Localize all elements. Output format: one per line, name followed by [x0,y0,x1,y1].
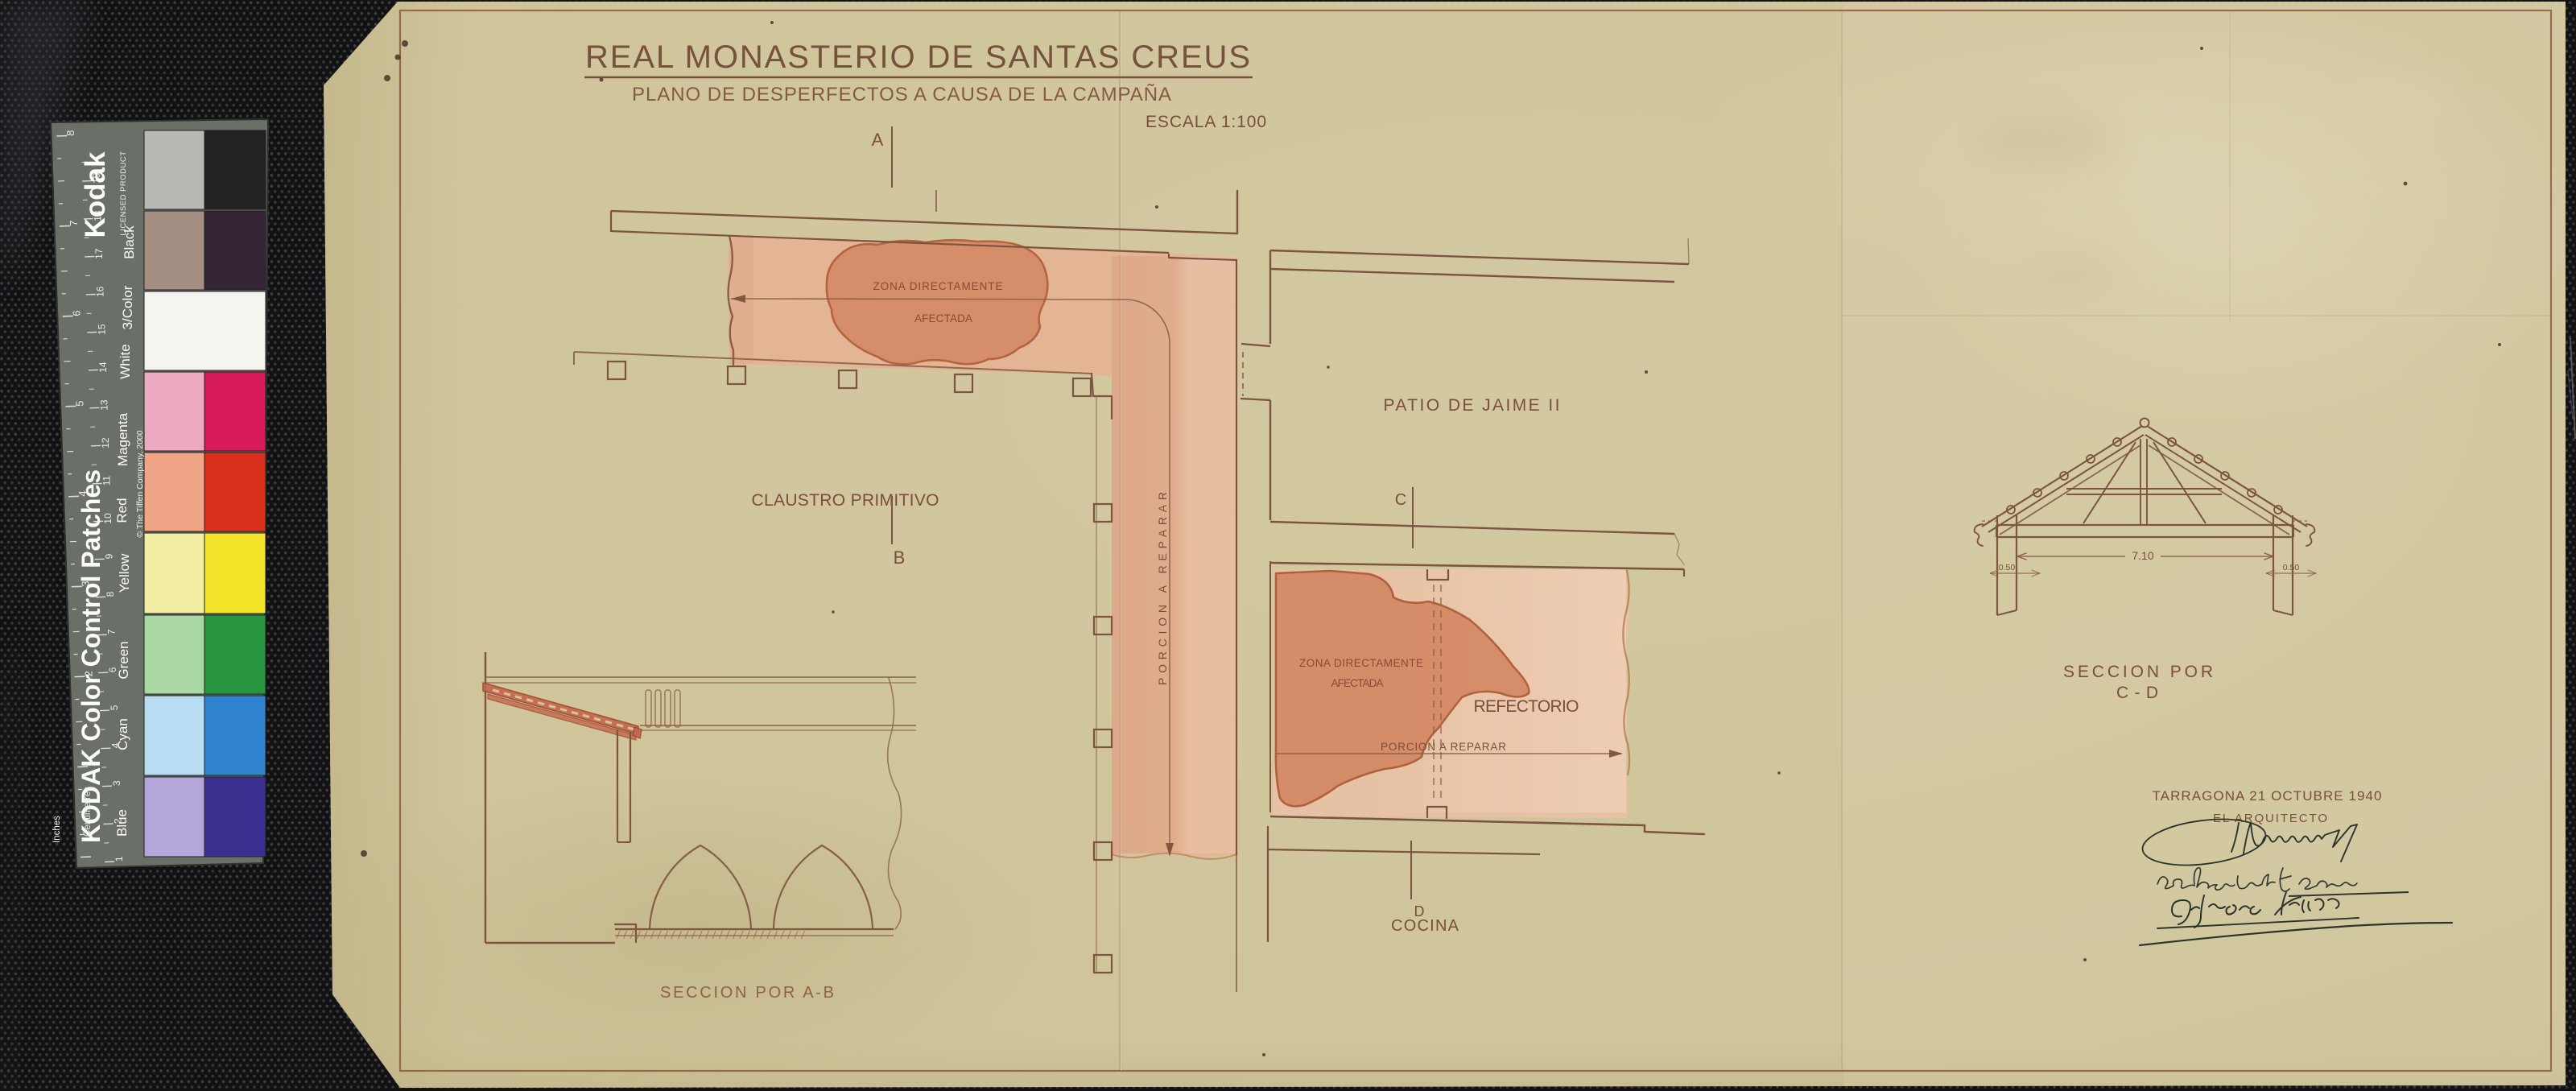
svg-text:C: C [1395,491,1406,509]
svg-text:14: 14 [97,362,109,373]
svg-text:5: 5 [109,705,120,710]
svg-text:5: 5 [73,400,85,406]
svg-text:3: 3 [111,780,122,786]
svg-text:ZONA DIRECTAMENTE: ZONA DIRECTAMENTE [873,280,1003,292]
svg-text:C - D: C - D [2116,684,2158,702]
svg-text:6: 6 [71,310,83,316]
svg-text:White: White [118,344,133,378]
svg-text:B: B [894,548,906,568]
svg-text:REAL MONASTERIO DE SANTAS CREU: REAL MONASTERIO DE SANTAS CREUS [585,39,1250,75]
svg-text:TARRAGONA 21 OCTUBRE 1940: TARRAGONA 21 OCTUBRE 1940 [2153,788,2382,804]
svg-text:8: 8 [64,130,76,136]
svg-text:7.10: 7.10 [2132,549,2153,562]
svg-text:CLAUSTRO PRIMITIVO: CLAUSTRO PRIMITIVO [752,491,939,510]
svg-text:Green: Green [116,641,131,679]
svg-text:SECCION POR: SECCION POR [2063,663,2213,681]
svg-text:ZONA DIRECTAMENTE: ZONA DIRECTAMENTE [1299,657,1423,669]
svg-text:15: 15 [96,324,107,335]
svg-text:LICENSED PRODUCT: LICENSED PRODUCT [119,151,128,235]
svg-text:Yellow: Yellow [117,553,132,593]
svg-text:Kodak: Kodak [80,151,111,238]
svg-text:Magenta: Magenta [115,412,130,466]
svg-text:Black: Black [122,225,137,259]
svg-text:1: 1 [114,856,125,862]
svg-text:13: 13 [98,399,109,411]
svg-text:16: 16 [95,286,106,297]
svg-text:Red: Red [114,498,130,523]
svg-text:0.50: 0.50 [2283,563,2300,572]
svg-text:REFECTORIO: REFECTORIO [1474,697,1579,716]
svg-text:PLANO DE DESPERFECTOS A CAUSA: PLANO DE DESPERFECTOS A CAUSA DE LA CAMP… [632,84,1171,105]
svg-text:PATIO DE JAIME II: PATIO DE JAIME II [1384,396,1560,415]
svg-text:Centimetres: Centimetres [83,787,93,837]
svg-text:3/Color: 3/Color [120,285,135,329]
svg-text:17: 17 [93,248,105,259]
svg-text:EL ARQUITECTO: EL ARQUITECTO [2213,812,2327,825]
svg-text:12: 12 [100,437,111,448]
svg-text:Blue: Blue [114,809,130,837]
svg-text:COCINA: COCINA [1391,917,1459,935]
svg-text:ESCALA 1:100: ESCALA 1:100 [1146,113,1266,131]
svg-text:Inches: Inches [52,816,62,843]
svg-text:AFECTADA: AFECTADA [914,312,972,324]
svg-text:© The Tiffen Company, 2000: © The Tiffen Company, 2000 [135,430,145,537]
svg-text:A: A [872,130,884,150]
svg-text:Cyan: Cyan [115,718,130,750]
svg-text:AFECTADA: AFECTADA [1331,677,1384,689]
svg-text:PORCION A REPARAR: PORCION A REPARAR [1381,741,1506,753]
svg-text:PORCION A REPARAR: PORCION A REPARAR [1156,492,1169,685]
svg-text:7: 7 [68,221,80,226]
svg-text:0.50: 0.50 [1999,563,2016,572]
svg-text:7: 7 [106,629,118,634]
svg-text:8: 8 [105,591,116,597]
